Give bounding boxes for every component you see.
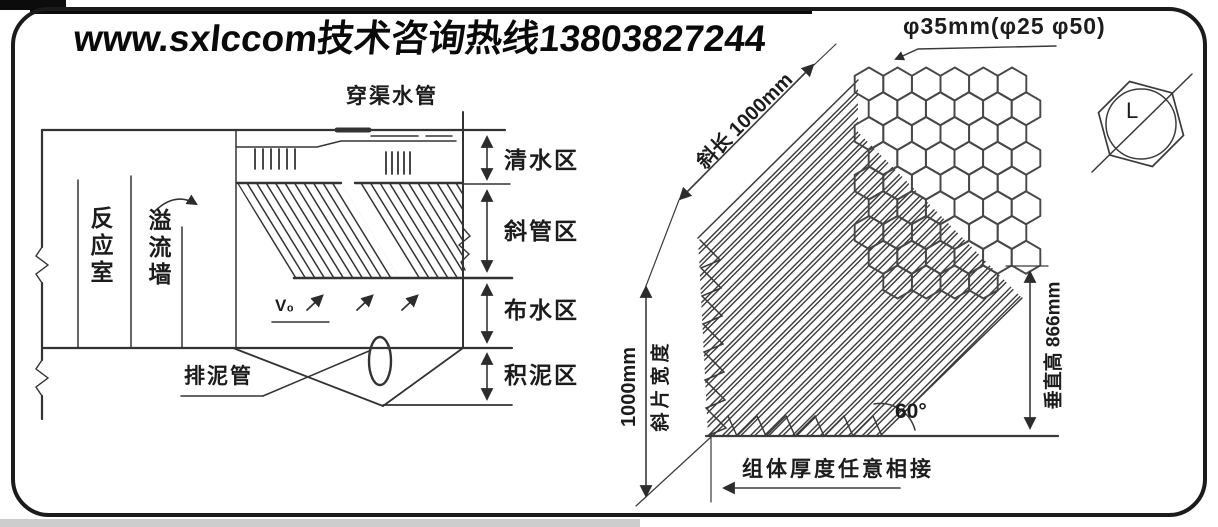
tube-hatch-left-panel <box>228 183 515 279</box>
hex-cell-detail-icon <box>1092 74 1192 172</box>
diagram-canvas <box>0 0 1218 527</box>
velocity-label: V₀ <box>275 297 294 314</box>
scanned-diagram-page: www.sxlccom技术咨询热线13803827244 穿渠水管 反应室 溢流… <box>0 0 1218 527</box>
collection-channel <box>237 136 456 147</box>
zone-label-sludge: 积泥区 <box>504 364 579 387</box>
tube-hatch-right-panel <box>228 183 515 279</box>
zone-label-distribution: 布水区 <box>504 299 579 322</box>
tube-module-drawing <box>636 44 1192 506</box>
overflow-wall-label: 溢流墙 <box>146 208 169 289</box>
zone-label-tube: 斜管区 <box>504 220 579 243</box>
flow-arrows <box>307 296 417 310</box>
zone-label-clear-water: 清水区 <box>504 149 579 172</box>
joint-note-label: 组体厚度任意相接 <box>742 459 934 480</box>
sludge-pipe-section <box>369 337 391 385</box>
vertical-height-label: 垂直高 866mm <box>1045 271 1064 421</box>
sludge-pipe-leader <box>263 351 369 396</box>
orifice-ticks <box>255 149 410 174</box>
sheet-width-label: 斜片宽度 <box>652 326 671 446</box>
width-label: 1000mm <box>619 337 639 437</box>
wall-break-icon <box>36 360 48 396</box>
wall-break-icon <box>459 228 470 270</box>
wall-break-icon <box>36 247 48 283</box>
pipe-label: 穿渠水管 <box>346 86 438 107</box>
diameter-label: φ35mm(φ25 φ50) <box>903 15 1106 38</box>
angle-label: 60° <box>895 401 927 422</box>
watermark-hotline: www.sxlccom技术咨询热线13803827244 <box>72 20 768 57</box>
tube-bundle-lines <box>699 90 1021 436</box>
sludge-pipe-label: 排泥管 <box>184 366 253 387</box>
cell-dimension-label: L <box>1126 100 1138 122</box>
honeycomb-face <box>855 68 1041 299</box>
diameter-leader <box>896 46 1056 59</box>
reaction-chamber-label: 反应室 <box>88 206 111 287</box>
photo-frame <box>0 0 1205 527</box>
